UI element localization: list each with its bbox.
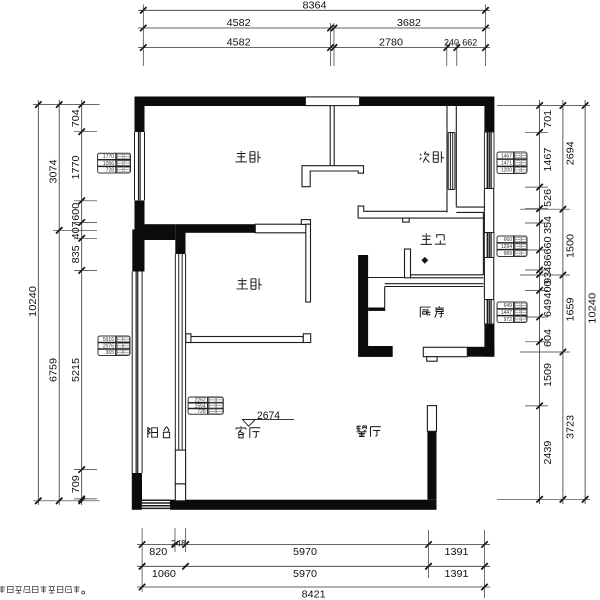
svg-text:1447: 1447	[501, 310, 512, 316]
svg-text:3682: 3682	[397, 17, 421, 29]
svg-text:649: 649	[504, 303, 513, 309]
svg-text:248: 248	[171, 539, 186, 550]
svg-text:1770: 1770	[70, 155, 82, 179]
svg-text:2674: 2674	[257, 410, 280, 422]
svg-text:660: 660	[542, 236, 554, 254]
svg-text:728: 728	[197, 409, 206, 415]
svg-text:600: 600	[70, 203, 82, 221]
svg-text:4582: 4582	[227, 17, 251, 29]
svg-text:1391: 1391	[445, 546, 469, 558]
svg-text:704: 704	[70, 109, 82, 127]
svg-text:2780: 2780	[379, 37, 403, 49]
svg-text:1659: 1659	[565, 297, 577, 321]
svg-text:1391: 1391	[445, 568, 469, 580]
svg-text:1509: 1509	[542, 363, 554, 387]
svg-text:3723: 3723	[565, 415, 577, 439]
svg-text:835: 835	[70, 245, 82, 263]
svg-text:5970: 5970	[293, 546, 317, 558]
svg-text:400: 400	[542, 280, 554, 298]
svg-text:604: 604	[542, 329, 554, 347]
svg-text:649: 649	[542, 299, 554, 317]
svg-text:4582: 4582	[227, 37, 251, 49]
svg-text:989: 989	[504, 251, 513, 257]
svg-text:5215: 5215	[70, 358, 82, 382]
svg-text:2076: 2076	[103, 343, 114, 349]
svg-text:8364: 8364	[303, 0, 327, 11]
svg-text:365: 365	[106, 350, 115, 356]
svg-text:1770: 1770	[103, 154, 114, 160]
svg-text:3074: 3074	[48, 159, 60, 183]
svg-text:709: 709	[70, 475, 82, 493]
svg-text:2439: 2439	[542, 440, 554, 464]
svg-text:1056: 1056	[103, 161, 114, 167]
svg-text:526: 526	[542, 189, 554, 207]
svg-text:1200: 1200	[501, 168, 512, 174]
svg-text:1500: 1500	[565, 234, 577, 258]
svg-text:5916: 5916	[103, 337, 114, 343]
svg-text:10240: 10240	[27, 286, 39, 317]
svg-text:662: 662	[462, 38, 477, 49]
svg-text:1467: 1467	[501, 153, 512, 159]
svg-text:1060: 1060	[152, 568, 176, 580]
svg-text:972: 972	[504, 317, 513, 323]
svg-text:5970: 5970	[293, 568, 317, 580]
svg-text:728: 728	[106, 167, 115, 173]
svg-text:2694: 2694	[565, 141, 577, 165]
svg-text:354: 354	[542, 216, 554, 234]
svg-text:10240: 10240	[587, 293, 599, 324]
svg-text:1467: 1467	[542, 148, 554, 172]
svg-text:1471: 1471	[501, 160, 512, 166]
svg-text:6759: 6759	[48, 358, 60, 382]
svg-text:8421: 8421	[302, 589, 326, 600]
svg-text:820: 820	[149, 546, 167, 558]
svg-text:660: 660	[504, 237, 513, 243]
svg-text:1294: 1294	[501, 244, 512, 250]
svg-text:701: 701	[542, 110, 554, 128]
